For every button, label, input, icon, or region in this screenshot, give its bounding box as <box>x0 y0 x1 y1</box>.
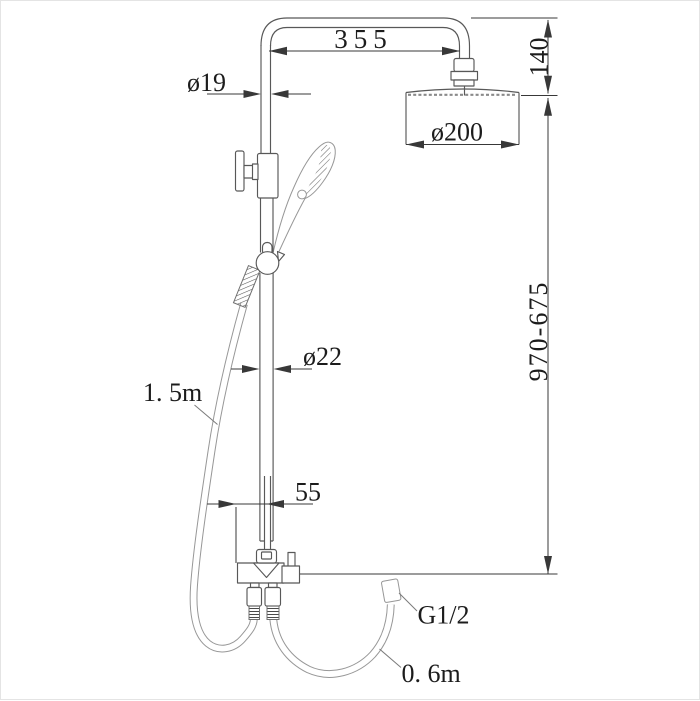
knob-bar <box>236 151 245 191</box>
dim-head-diameter-label: ø200 <box>431 118 483 147</box>
arrowhead <box>242 365 260 373</box>
dim-lower-pipe-diameter-label: ø22 <box>303 342 342 371</box>
hose-end-fitting <box>381 579 401 603</box>
shower-system-drawing: 355 140 ø19 ø200 970-675 ø22 1. 5m 55 G1… <box>1 1 700 701</box>
arrowhead <box>244 90 262 98</box>
arrowhead <box>544 556 552 574</box>
arm-step <box>454 80 474 86</box>
arrowhead <box>544 20 552 38</box>
hose-outline <box>194 304 254 649</box>
left-connector-thread <box>249 606 260 620</box>
dim-height-range-label: 970-675 <box>524 281 553 382</box>
slider-bracket <box>236 151 279 198</box>
slider-sleeve <box>258 154 279 199</box>
dimension-970-675 <box>300 98 558 574</box>
mixer-assembly <box>238 550 300 620</box>
arm-flare <box>451 72 478 81</box>
hose-outline <box>273 605 391 674</box>
dim-top-arm-width-label: 355 <box>334 24 393 54</box>
hose-crimp-connector <box>233 266 260 308</box>
dim-offset-label: 55 <box>295 478 321 507</box>
left-connector-body <box>247 588 262 607</box>
holder-ring <box>256 252 279 275</box>
crimp-hatch <box>233 266 260 308</box>
knob-neck <box>244 166 253 179</box>
hose-core <box>273 605 391 674</box>
arrowhead <box>219 500 237 508</box>
hose-core <box>194 304 254 649</box>
arrowhead <box>274 365 292 373</box>
arrowhead <box>544 76 552 94</box>
arrowhead <box>269 47 287 55</box>
right-connector-body <box>265 588 281 607</box>
nut-tab <box>262 552 272 559</box>
hand-shower-hose-1-5m <box>194 304 254 649</box>
knob-base <box>253 164 259 180</box>
hose-length-label: 1. 5m <box>143 378 202 407</box>
technical-drawing-page: 355 140 ø19 ø200 970-675 ø22 1. 5m 55 G1… <box>0 0 700 700</box>
arrowhead <box>267 500 285 508</box>
leader-0-6m <box>380 649 402 668</box>
thread-size-label: G1/2 <box>418 601 470 630</box>
right-connector-neck <box>269 583 278 588</box>
right-connector-thread <box>267 606 279 620</box>
outlet-hose-0-6m <box>273 579 401 674</box>
left-connector-neck <box>251 583 260 588</box>
arrowhead <box>544 98 552 116</box>
hand-shower <box>273 142 335 253</box>
outlet-hose-length-label: 0. 6m <box>402 659 461 688</box>
leader-g12 <box>399 593 417 611</box>
arrowhead <box>442 47 460 55</box>
handle-block <box>282 566 300 583</box>
dim-upper-pipe-diameter-label: ø19 <box>187 68 226 97</box>
handle-stub <box>288 553 295 567</box>
dimension-phi22 <box>231 365 312 373</box>
arrowhead <box>271 90 289 98</box>
hang-ring <box>298 190 307 199</box>
arm-nut <box>454 59 474 72</box>
dim-head-drop-label: 140 <box>525 38 554 77</box>
